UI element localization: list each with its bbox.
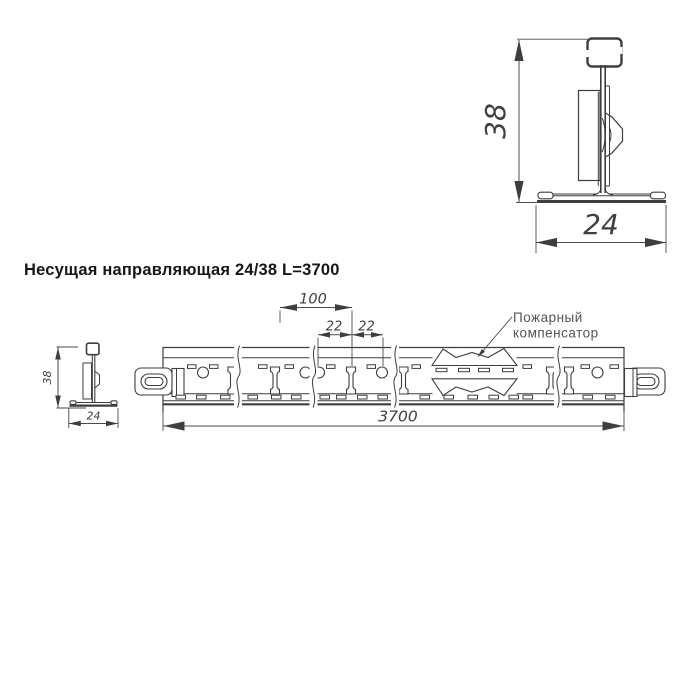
dim-24-value: 24 <box>583 208 619 241</box>
callout-line-2: компенсатор <box>513 326 599 341</box>
flange-cap-right <box>651 192 666 199</box>
dim-100-value: 100 <box>299 292 327 308</box>
flange-cap-left <box>538 192 553 199</box>
end-clip-plate <box>83 363 92 399</box>
dim-3700-value: 3700 <box>378 408 418 426</box>
cross-section-view: 38 24 <box>479 39 666 254</box>
end-flange-cap-left <box>70 401 76 405</box>
dimension-22-pair: 22 22 <box>318 320 383 367</box>
end-flange-cap-right <box>111 401 117 405</box>
dim-38-small-value: 38 <box>41 371 54 385</box>
dim-38-value: 38 <box>479 103 512 139</box>
dim-24-small-value: 24 <box>87 410 101 423</box>
rail-side-view: 100 22 22 3700 <box>135 292 665 432</box>
end-stem <box>92 355 95 403</box>
profile-bulb <box>588 39 622 67</box>
end-bulb <box>87 343 100 355</box>
fire-compensator <box>432 349 517 396</box>
cross-tee-slots <box>228 367 574 394</box>
dimension-24: 24 <box>536 205 666 253</box>
connector-tab-left <box>135 368 172 395</box>
dimension-38: 38 <box>479 39 590 202</box>
seam-gap <box>619 47 622 54</box>
fire-compensator-callout: Пожарный компенсатор <box>476 310 599 359</box>
end-view: 38 24 <box>41 343 118 428</box>
dimension-24-small: 24 <box>69 408 118 428</box>
dim-22-right-value: 22 <box>358 320 375 335</box>
callout-line-1: Пожарный <box>513 310 583 325</box>
drawing-page: Несущая направляющая 24/38 L=3700 <box>0 0 700 700</box>
dim-22-left-value: 22 <box>326 320 343 335</box>
stem-foot <box>593 188 613 195</box>
technical-drawing: 38 24 <box>0 0 700 700</box>
dimension-38-small: 38 <box>41 347 86 408</box>
end-clip-bump <box>95 371 100 388</box>
dimension-3700: 3700 <box>163 408 624 432</box>
seam-gap <box>586 50 589 57</box>
clip-bump <box>606 113 623 157</box>
clip-plate <box>579 91 601 181</box>
